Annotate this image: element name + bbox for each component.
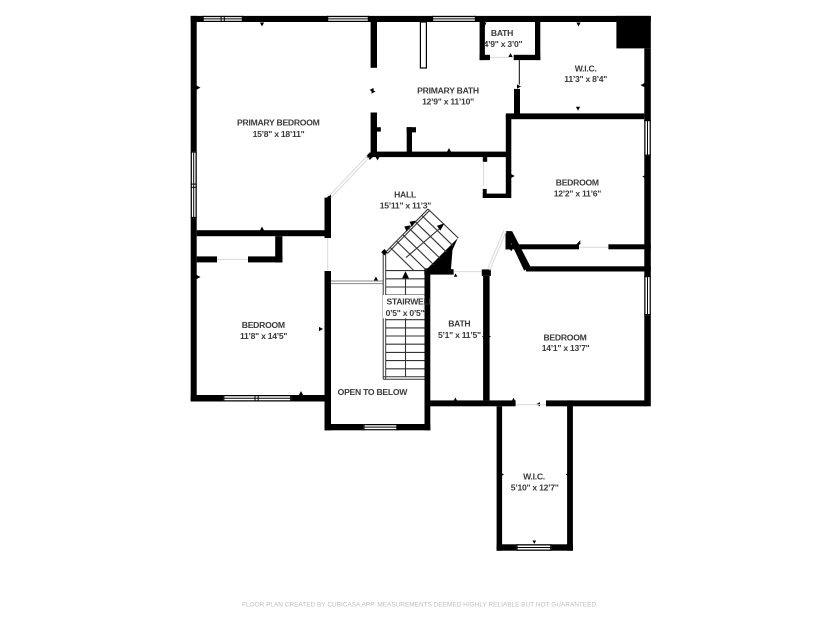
svg-text:OPEN TO BELOW: OPEN TO BELOW bbox=[338, 387, 409, 397]
svg-text:0’5" x 0’5": 0’5" x 0’5" bbox=[386, 308, 425, 318]
svg-text:5’10" x 12’7": 5’10" x 12’7" bbox=[511, 482, 559, 492]
svg-text:12’9" x 11’10": 12’9" x 11’10" bbox=[422, 96, 474, 106]
svg-text:5’1" x 11’5": 5’1" x 11’5" bbox=[438, 330, 481, 340]
svg-text:STAIRWELL: STAIRWELL bbox=[387, 297, 434, 307]
svg-text:4’9" x 3’0": 4’9" x 3’0" bbox=[484, 39, 523, 49]
svg-text:15’11" x 11’3": 15’11" x 11’3" bbox=[380, 201, 432, 211]
svg-text:W.I.C.: W.I.C. bbox=[523, 472, 545, 482]
svg-text:PRIMARY BATH: PRIMARY BATH bbox=[417, 85, 479, 95]
svg-text:BATH: BATH bbox=[448, 319, 470, 329]
svg-text:BEDROOM: BEDROOM bbox=[543, 333, 586, 343]
svg-text:14’1" x 13’7": 14’1" x 13’7" bbox=[542, 343, 590, 353]
svg-text:BATH: BATH bbox=[491, 28, 513, 38]
svg-text:BEDROOM: BEDROOM bbox=[556, 178, 599, 188]
svg-text:BEDROOM: BEDROOM bbox=[242, 320, 285, 330]
svg-text:HALL: HALL bbox=[394, 189, 416, 199]
svg-text:11’3" x 8’4": 11’3" x 8’4" bbox=[564, 74, 607, 84]
svg-text:12’2" x 11’6": 12’2" x 11’6" bbox=[554, 188, 601, 198]
svg-text:PRIMARY BEDROOM: PRIMARY BEDROOM bbox=[237, 118, 320, 128]
svg-text:15’8" x 18’11": 15’8" x 18’11" bbox=[253, 129, 305, 139]
svg-text:FLOOR PLAN CREATED BY CUBICASA: FLOOR PLAN CREATED BY CUBICASA APP. MEAS… bbox=[242, 602, 598, 609]
svg-text:11’8" x 14’5": 11’8" x 14’5" bbox=[240, 331, 287, 341]
svg-text:W.I.C.: W.I.C. bbox=[575, 64, 597, 74]
